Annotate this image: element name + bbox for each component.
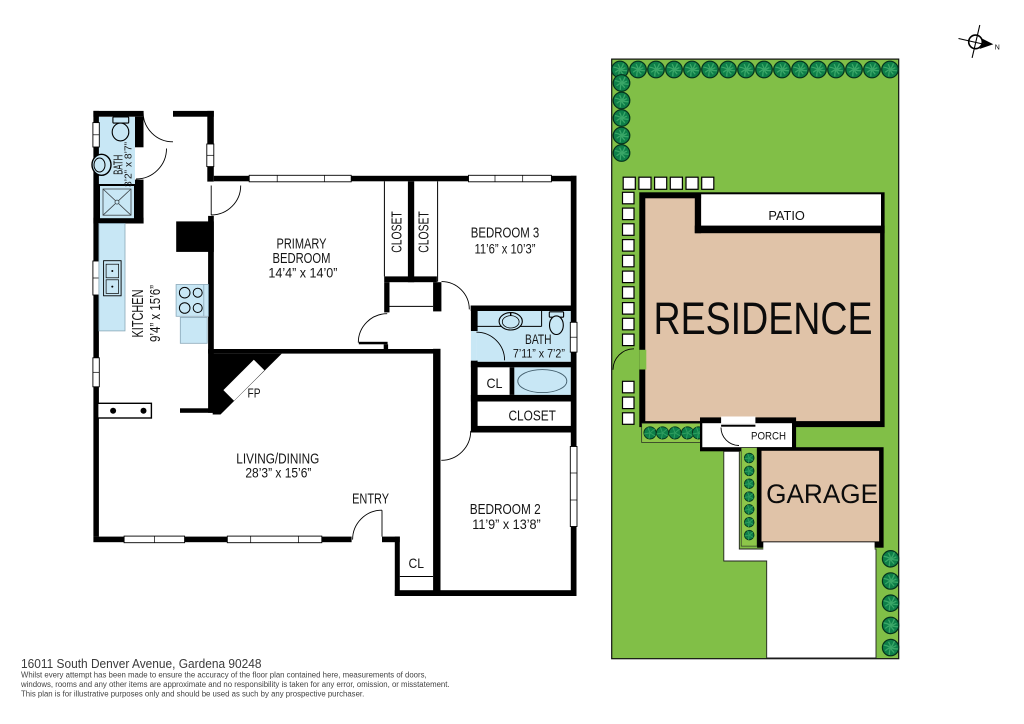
svg-text:CL: CL — [409, 555, 425, 571]
svg-text:16011 South Denver Avenue, Gar: 16011 South Denver Avenue, Gardena 90248 — [21, 656, 262, 671]
svg-text:CL: CL — [487, 375, 503, 391]
svg-text:This plan is for illustrative: This plan is for illustrative purposes o… — [21, 690, 364, 699]
svg-text:RESIDENCE: RESIDENCE — [654, 293, 873, 344]
svg-text:BATH: BATH — [525, 332, 552, 347]
svg-text:ENTRY: ENTRY — [352, 491, 389, 508]
svg-text:11’9” x 13’8”: 11’9” x 13’8” — [472, 516, 541, 532]
svg-text:Whilst every attempt has been: Whilst every attempt has been made to en… — [21, 671, 427, 680]
svg-text:28’3” x 15’6”: 28’3” x 15’6” — [245, 465, 311, 481]
svg-text:PATIO: PATIO — [768, 208, 805, 223]
svg-text:3’2” x 8’7”: 3’2” x 8’7” — [124, 142, 135, 187]
svg-text:GARAGE: GARAGE — [766, 479, 878, 509]
svg-text:BEDROOM 3: BEDROOM 3 — [471, 224, 540, 241]
svg-text:7’11” x 7’2”: 7’11” x 7’2” — [513, 346, 565, 360]
svg-text:KITCHEN: KITCHEN — [130, 290, 147, 338]
svg-text:windows, rooms and any other i: windows, rooms and any other items are a… — [20, 680, 450, 689]
svg-text:11’6” x 10’3”: 11’6” x 10’3” — [475, 241, 536, 257]
svg-text:14’4” x 14’0”: 14’4” x 14’0” — [268, 264, 337, 280]
svg-text:FP: FP — [248, 387, 261, 401]
svg-text:9’4” x 15’6”: 9’4” x 15’6” — [147, 285, 164, 342]
svg-text:CLOSET: CLOSET — [508, 407, 556, 424]
svg-text:N: N — [995, 44, 1000, 51]
svg-text:CLOSET: CLOSET — [416, 211, 433, 253]
svg-text:PORCH: PORCH — [751, 431, 786, 443]
svg-text:CLOSET: CLOSET — [388, 211, 405, 253]
